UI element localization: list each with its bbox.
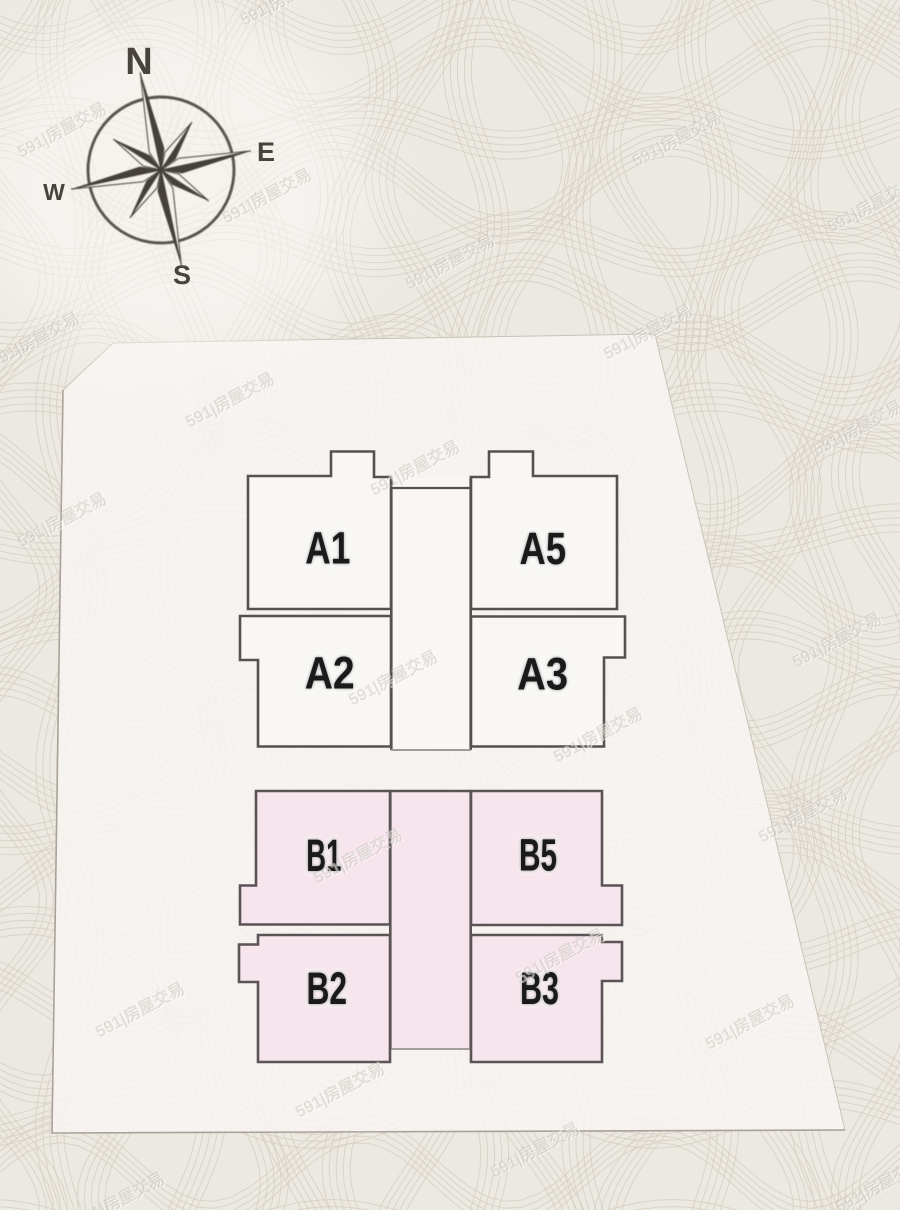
svg-text:A1: A1 bbox=[305, 523, 350, 574]
svg-text:A5: A5 bbox=[520, 523, 567, 574]
svg-text:B5: B5 bbox=[519, 830, 557, 881]
svg-text:N: N bbox=[125, 41, 152, 83]
svg-text:S: S bbox=[173, 260, 191, 290]
svg-text:A3: A3 bbox=[517, 649, 568, 700]
svg-text:B2: B2 bbox=[307, 963, 348, 1014]
svg-text:E: E bbox=[257, 137, 275, 167]
svg-text:A2: A2 bbox=[305, 648, 355, 699]
svg-text:W: W bbox=[43, 179, 65, 205]
